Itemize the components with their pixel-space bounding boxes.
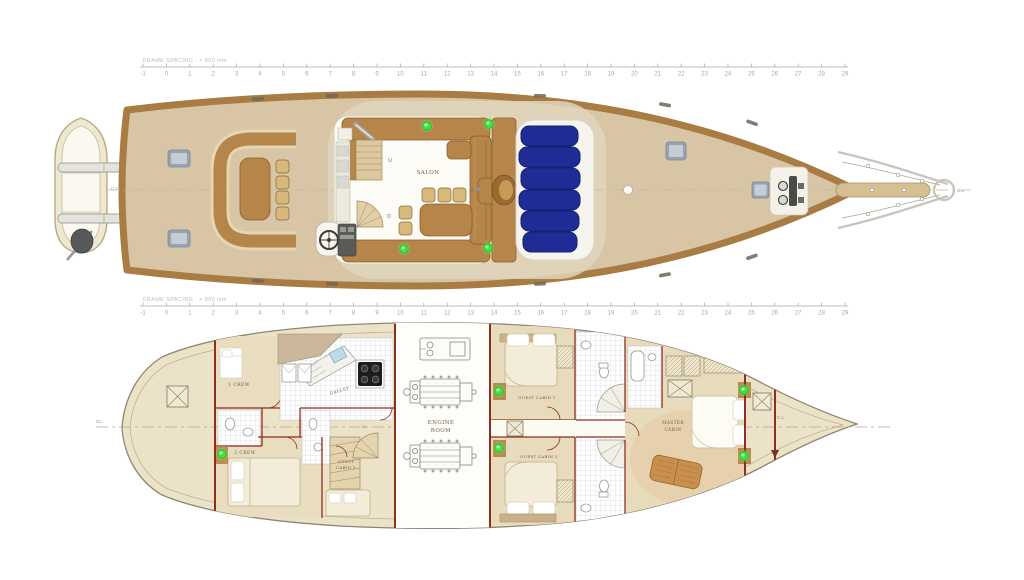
generator <box>420 338 470 360</box>
engine-room-label-2: ROOM <box>431 428 451 434</box>
svg-text:6: 6 <box>305 72 309 78</box>
deck-plan-drawing: FRAME SPACING : + 900 mm -10123456789101… <box>0 0 1024 580</box>
svg-text:13: 13 <box>467 311 474 317</box>
guest-corridor <box>491 420 625 437</box>
svg-text:17: 17 <box>561 72 568 78</box>
svg-text:24: 24 <box>725 311 732 317</box>
centerline-label-lower-aft: CL. <box>96 419 103 424</box>
gc3-bathroom <box>302 410 330 464</box>
svg-text:21: 21 <box>654 311 661 317</box>
guest-bathroom-fwd <box>576 332 625 420</box>
svg-text:19: 19 <box>608 72 615 78</box>
svg-text:9: 9 <box>375 311 379 317</box>
svg-text:14: 14 <box>491 311 498 317</box>
wardrobe <box>666 356 682 376</box>
store-label: STORE <box>754 468 772 475</box>
chain-hatch <box>752 182 769 198</box>
svg-text:10: 10 <box>397 311 404 317</box>
svg-text:12: 12 <box>444 72 451 78</box>
svg-text:0: 0 <box>165 72 169 78</box>
salon-aft-cabinet <box>342 240 490 262</box>
toilet <box>226 418 235 430</box>
gc3-stair-up-label: U <box>362 424 365 429</box>
svg-text:7: 7 <box>329 72 333 78</box>
svg-text:27: 27 <box>795 311 802 317</box>
svg-text:8: 8 <box>352 72 356 78</box>
centerline-label-bow: C.L. <box>957 188 965 193</box>
svg-text:20: 20 <box>631 311 638 317</box>
svg-text:22: 22 <box>678 311 685 317</box>
wardrobe <box>557 346 573 368</box>
svg-text:0: 0 <box>165 311 169 317</box>
lower-frame-ruler: -101234567891011121314151617181920212223… <box>140 303 849 317</box>
outboard-motor <box>71 229 93 253</box>
svg-text:29: 29 <box>842 311 849 317</box>
upper-frame-ruler: -101234567891011121314151617181920212223… <box>140 64 849 78</box>
galley-cabinets <box>336 128 352 222</box>
svg-text:25: 25 <box>748 72 755 78</box>
svg-text:28: 28 <box>818 311 825 317</box>
main-deck-plan: C.L. <box>55 94 972 286</box>
svg-text:4: 4 <box>258 311 262 317</box>
wardrobe <box>684 356 700 376</box>
svg-text:23: 23 <box>701 72 708 78</box>
svg-text:10: 10 <box>397 72 404 78</box>
svg-text:-1: -1 <box>140 311 146 317</box>
lower-ruler-label: FRAME SPACING : + 900 mm <box>143 297 227 303</box>
svg-text:24: 24 <box>725 72 732 78</box>
svg-text:22: 22 <box>678 72 685 78</box>
svg-text:3: 3 <box>235 311 239 317</box>
svg-text:17: 17 <box>561 311 568 317</box>
wardrobe <box>557 480 573 502</box>
svg-text:5: 5 <box>282 311 286 317</box>
svg-text:18: 18 <box>584 72 591 78</box>
sunpad-area <box>516 120 594 260</box>
svg-text:20: 20 <box>631 72 638 78</box>
gc3-label-2: CABIN 3 <box>336 465 356 470</box>
svg-text:19: 19 <box>608 311 615 317</box>
svg-text:18: 18 <box>584 311 591 317</box>
foredeck-hatch <box>666 142 686 160</box>
svg-text:13: 13 <box>467 72 474 78</box>
svg-text:2: 2 <box>212 72 216 78</box>
svg-text:7: 7 <box>329 311 333 317</box>
svg-text:28: 28 <box>818 72 825 78</box>
stairs-up-label: U <box>388 158 392 164</box>
mast-section <box>492 118 516 262</box>
coffee-table <box>447 141 471 159</box>
svg-text:8: 8 <box>352 311 356 317</box>
stairs-down-label: D <box>387 214 391 220</box>
gc1-label: GUEST CABIN 1 <box>518 395 555 400</box>
svg-text:1: 1 <box>188 72 192 78</box>
svg-text:16: 16 <box>537 72 544 78</box>
deck-fill <box>624 186 633 195</box>
bathtub <box>631 351 644 381</box>
svg-text:29: 29 <box>842 72 849 78</box>
crew2-label: 2 CREW <box>234 450 255 456</box>
sunpad-cushions <box>519 126 580 252</box>
lower-deck-plan: CL. <box>96 322 893 528</box>
stern-storage <box>167 386 188 407</box>
deckhouse-salon: SALON U D <box>316 116 506 264</box>
salon-label: SALON <box>417 170 440 176</box>
guest-cabin-1 <box>490 326 575 420</box>
helm-station <box>316 222 356 256</box>
svg-text:25: 25 <box>748 311 755 317</box>
tender-boat <box>55 118 107 260</box>
dining-table <box>420 204 472 236</box>
aft-deck-table <box>240 158 270 220</box>
crew-bathroom <box>218 410 260 446</box>
master-cabin <box>625 330 751 526</box>
svg-text:2: 2 <box>212 311 216 317</box>
svg-text:1: 1 <box>188 311 192 317</box>
master-label-1: MASTER <box>662 421 684 426</box>
svg-text:14: 14 <box>491 72 498 78</box>
svg-text:16: 16 <box>537 311 544 317</box>
svg-text:-1: -1 <box>140 72 146 78</box>
stove <box>358 362 382 386</box>
gc3-label-1: GUEST <box>338 459 354 464</box>
svg-text:4: 4 <box>258 72 262 78</box>
crew1-label: 1 CREW <box>228 382 249 388</box>
svg-text:21: 21 <box>654 72 661 78</box>
svg-text:23: 23 <box>701 311 708 317</box>
svg-text:27: 27 <box>795 72 802 78</box>
svg-text:6: 6 <box>305 311 309 317</box>
upper-ruler-label: FRAME SPACING : + 900 mm <box>143 58 227 64</box>
svg-text:12: 12 <box>444 311 451 317</box>
yacht-deck-plans: FRAME SPACING : + 900 mm -10123456789101… <box>0 0 1024 580</box>
svg-text:9: 9 <box>375 72 379 78</box>
svg-text:15: 15 <box>514 311 521 317</box>
sink <box>243 428 253 436</box>
svg-text:3: 3 <box>235 72 239 78</box>
salon-forward-cabinet <box>342 118 490 140</box>
stairs-up <box>350 140 382 180</box>
svg-text:26: 26 <box>771 72 778 78</box>
svg-text:26: 26 <box>771 311 778 317</box>
svg-text:11: 11 <box>421 72 428 78</box>
guest-bathroom-aft <box>576 437 625 523</box>
master-label-2: CABIN <box>664 428 681 433</box>
bowsprit-plank <box>836 183 930 197</box>
gc2-label: GUEST CABIN 2 <box>520 454 558 459</box>
lower-deck-rooms: 1 CREW 2 CREW <box>167 322 779 528</box>
windlass <box>770 167 808 215</box>
svg-text:11: 11 <box>421 311 428 317</box>
engine-room-label-1: ENGINE <box>428 420 455 426</box>
svg-text:15: 15 <box>514 72 521 78</box>
centerline-label-lower-bow: C.L. <box>777 415 785 420</box>
svg-text:5: 5 <box>282 72 286 78</box>
